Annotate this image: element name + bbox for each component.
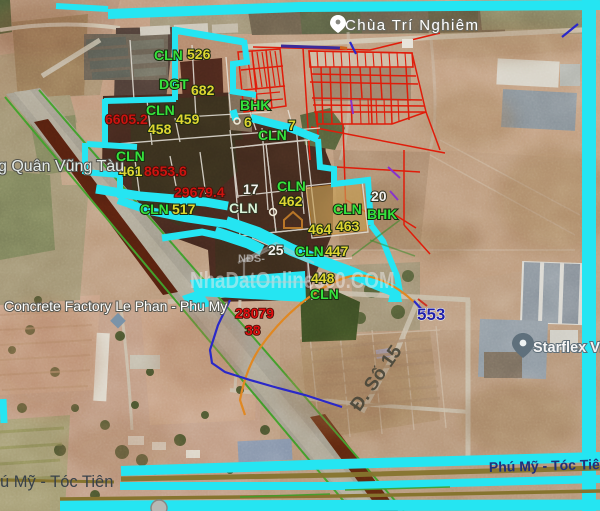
svg-text:517: 517: [172, 201, 196, 217]
svg-text:CLN: CLN: [277, 178, 306, 194]
svg-text:17: 17: [243, 181, 259, 197]
svg-text:458: 458: [148, 121, 172, 137]
svg-text:682: 682: [191, 82, 215, 98]
svg-text:38: 38: [245, 322, 261, 338]
svg-text:NĐS-: NĐS-: [238, 253, 265, 265]
svg-text:25: 25: [268, 242, 284, 258]
svg-text:DGT: DGT: [159, 76, 189, 92]
svg-text:Chùa Trí Nghiêm: Chùa Trí Nghiêm: [345, 17, 479, 34]
svg-text:8653.6: 8653.6: [144, 163, 187, 179]
svg-text:CLN: CLN: [154, 47, 183, 63]
svg-text:CLN: CLN: [229, 200, 258, 216]
svg-text:6605.2: 6605.2: [105, 111, 148, 127]
svg-text:g Quân Vũng Tàu: g Quân Vũng Tàu: [0, 158, 124, 175]
svg-text:CLN: CLN: [140, 201, 169, 217]
svg-text:Starflex Việ: Starflex Việ: [533, 340, 600, 356]
svg-text:Phú Mỹ - Tóc Tiên: Phú Mỹ - Tóc Tiên: [489, 456, 600, 475]
svg-text:CLN: CLN: [258, 127, 287, 143]
svg-text:CLN: CLN: [295, 243, 324, 259]
svg-text:7: 7: [288, 117, 296, 133]
svg-text:CLN: CLN: [333, 201, 362, 217]
svg-text:459: 459: [176, 111, 200, 127]
svg-text:BHK: BHK: [367, 206, 397, 222]
svg-text:462: 462: [279, 193, 303, 209]
svg-text:526: 526: [187, 46, 211, 62]
svg-text:29679.4: 29679.4: [174, 184, 225, 200]
svg-text:464: 464: [308, 221, 332, 237]
svg-text:NhaDatOnline360.COM: NhaDatOnline360.COM: [190, 267, 395, 294]
svg-text:BHK: BHK: [240, 97, 270, 113]
svg-text:28079: 28079: [235, 305, 274, 321]
svg-text:Concrete Factory Le Phan - Phu: Concrete Factory Le Phan - Phu My: [4, 298, 227, 314]
svg-text:CLN: CLN: [146, 102, 175, 118]
svg-text:448: 448: [311, 270, 335, 286]
svg-text:6: 6: [244, 114, 252, 130]
svg-text:ú Mỹ - Tóc Tiên: ú Mỹ - Tóc Tiên: [0, 473, 113, 491]
svg-text:447: 447: [325, 243, 349, 259]
svg-text:20: 20: [371, 188, 387, 204]
svg-text:CLN: CLN: [310, 286, 339, 302]
svg-text:553: 553: [417, 305, 445, 324]
svg-text:463: 463: [336, 218, 360, 234]
